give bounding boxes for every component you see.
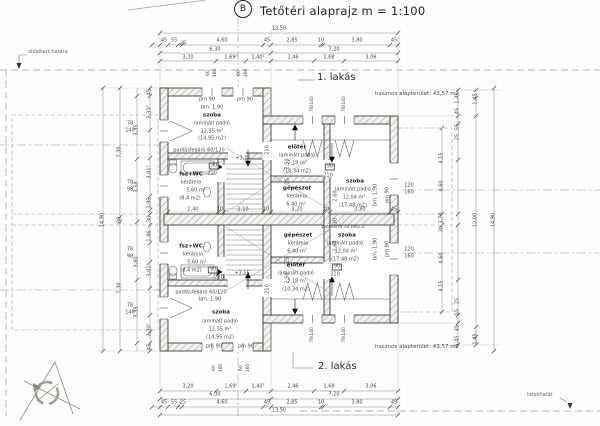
boundary-arrow-right [568,403,573,409]
floor-plan-drawing: 13,504555254,60452,85103,80456,307,203,2… [0,0,600,426]
party-wall [164,214,394,225]
plan-linework [0,0,600,426]
section-marker-b: B [234,0,252,18]
roof-outline-right [398,128,452,312]
drawing-title: Tetőtéri alaprajz m = 1:100 [260,4,426,18]
boundary-arrow-left [17,63,22,69]
flat2-area-label: hasznos alapterület: 43,57 m2 [375,344,459,350]
side-garden-boundary-label: oldalkert határa [28,49,68,55]
flat1-area-label: hasznos alapterület: 43,57 m2 [375,91,459,97]
north-arrow [20,362,80,420]
flat1-label: 1. lakás [317,72,356,83]
plot-boundary-label: telekhatár [527,392,553,398]
flat2-label: 2. lakás [318,361,357,372]
